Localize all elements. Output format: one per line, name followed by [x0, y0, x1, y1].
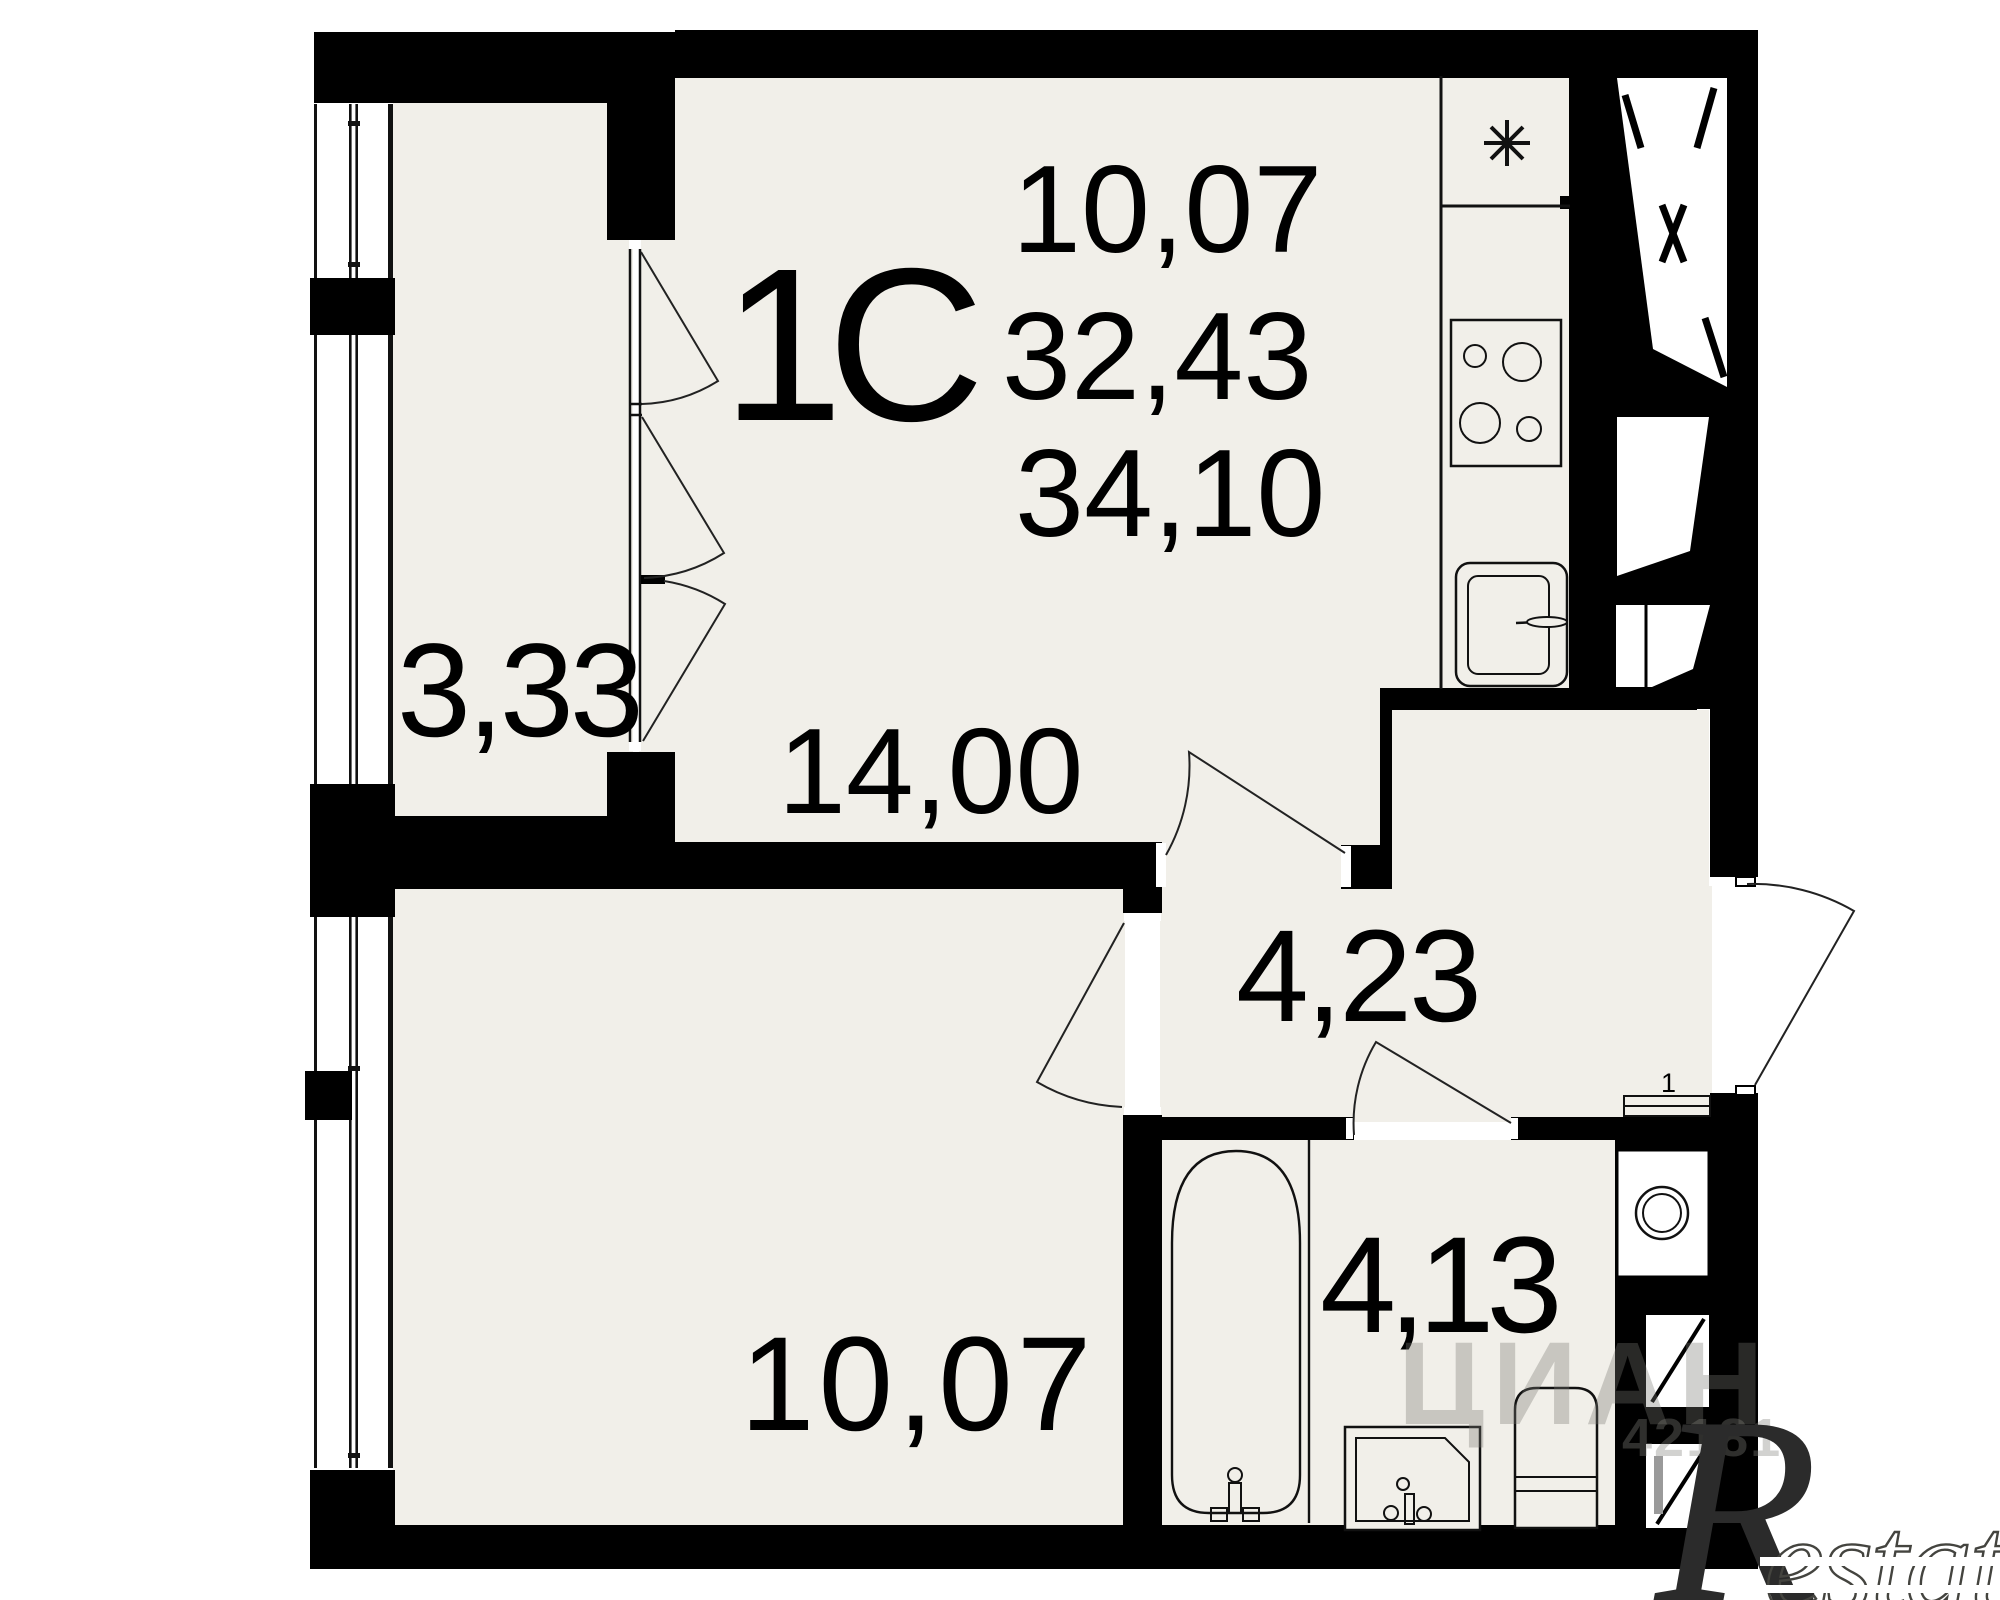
svg-text:1С: 1С	[722, 224, 977, 467]
svg-text:32,43: 32,43	[1002, 288, 1312, 426]
svg-text:10,07: 10,07	[740, 1310, 1095, 1459]
svg-text:10,07: 10,07	[1012, 141, 1322, 279]
svg-text:estate: estate	[1764, 1489, 2000, 1600]
svg-text:3,33: 3,33	[397, 617, 640, 765]
svg-text:4,23: 4,23	[1236, 902, 1479, 1049]
svg-text:34,10: 34,10	[1015, 425, 1325, 563]
svg-text:14,00: 14,00	[778, 703, 1083, 839]
svg-text:1: 1	[1661, 1068, 1676, 1098]
